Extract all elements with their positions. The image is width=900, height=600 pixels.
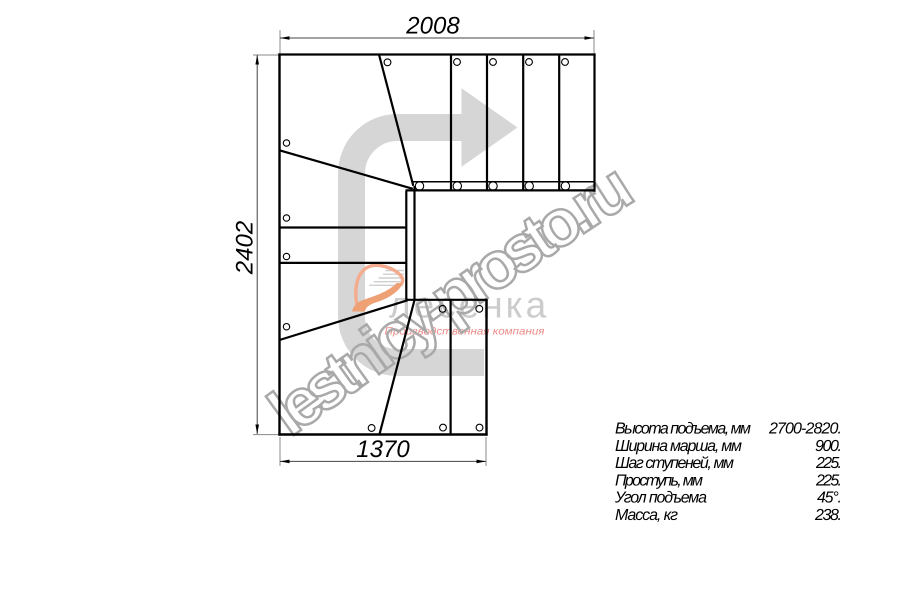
svg-text:45°.: 45°. xyxy=(817,490,842,507)
svg-text:Угол подъема: Угол подъема xyxy=(614,490,707,507)
svg-text:1370: 1370 xyxy=(356,436,410,463)
svg-text:238.: 238. xyxy=(814,507,842,524)
svg-text:900.: 900. xyxy=(815,438,842,455)
svg-text:Проступь, мм: Проступь, мм xyxy=(615,472,703,489)
svg-text:225.: 225. xyxy=(815,455,842,472)
svg-text:2402: 2402 xyxy=(232,221,259,275)
svg-text:Шаг ступеней, мм: Шаг ступеней, мм xyxy=(615,455,734,472)
svg-text:2700-2820.: 2700-2820. xyxy=(768,421,842,438)
svg-text:Масса, кг: Масса, кг xyxy=(615,507,678,524)
svg-text:Высота подъема, мм: Высота подъема, мм xyxy=(615,421,751,438)
svg-text:225.: 225. xyxy=(815,472,842,489)
svg-text:Ширина марша, мм: Ширина марша, мм xyxy=(615,438,742,455)
svg-text:2008: 2008 xyxy=(405,13,460,40)
